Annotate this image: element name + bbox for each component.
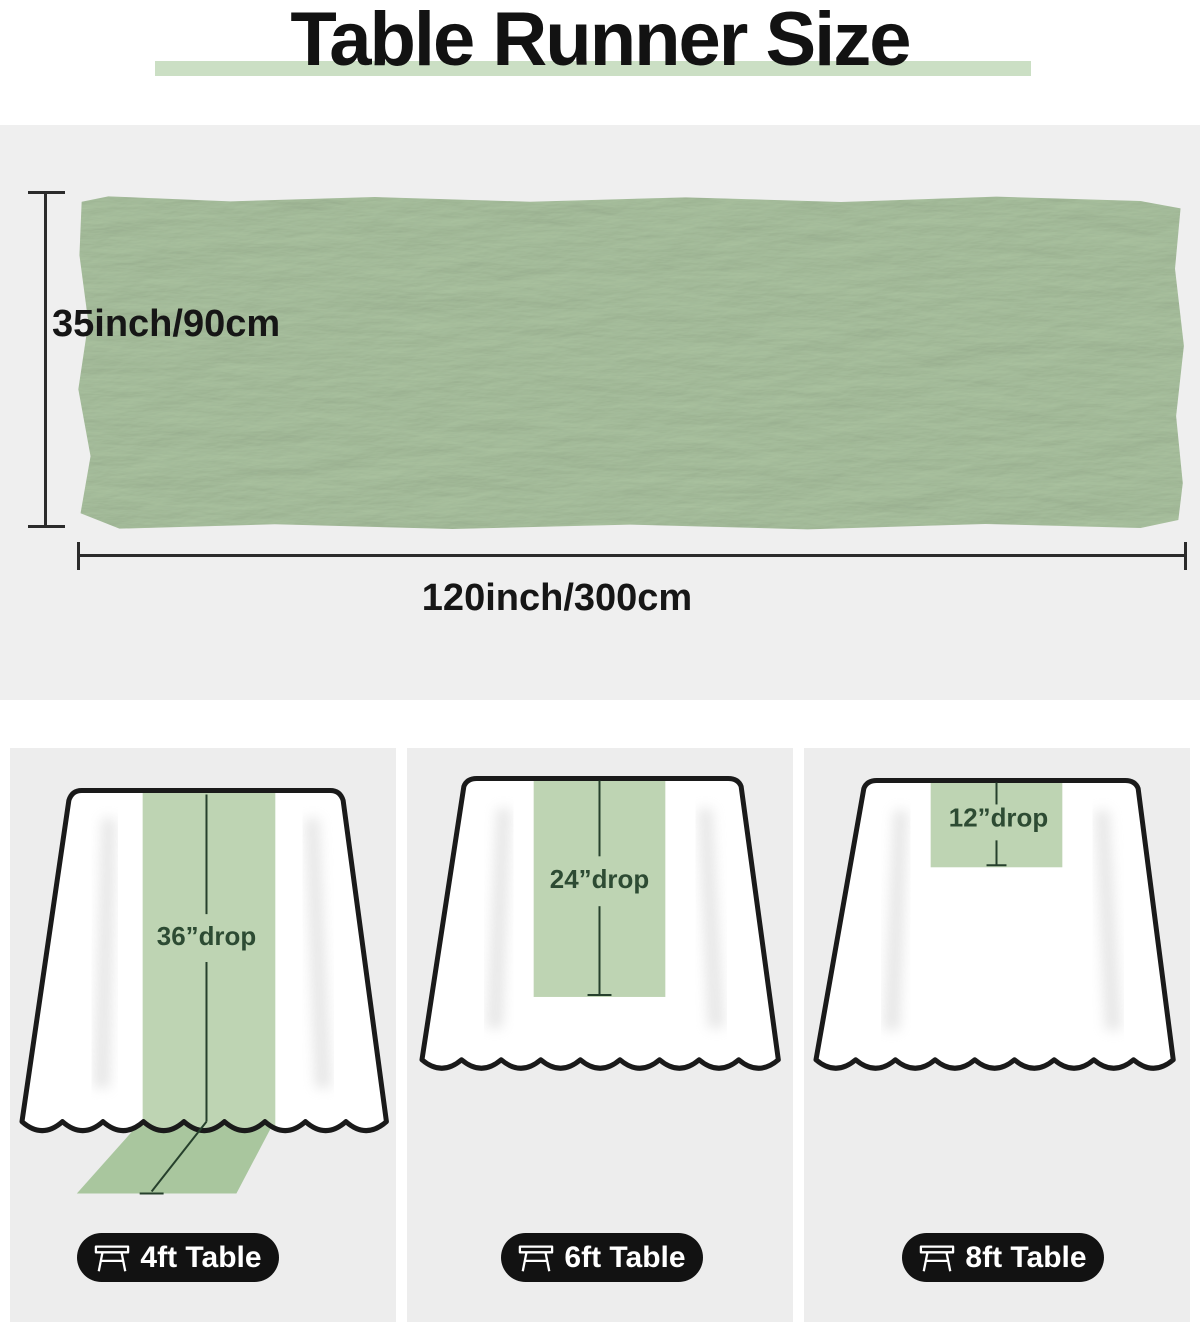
table-size-badge: 8ft Table [902,1233,1104,1282]
height-dimension-label: 35inch/90cm [52,303,280,346]
width-dimension-cap-left [77,542,80,570]
table-size-label: 4ft Table [140,1241,261,1275]
drop-label: 12”drop [949,804,1048,832]
panel-4ft-table: 36”drop 4ft Table [10,748,396,1322]
height-dimension-line [44,193,47,528]
runner-photo [75,195,1185,530]
panel-8ft-table: 12”drop 8ft Table [804,748,1190,1322]
runner-strip [143,788,276,1137]
table-icon [919,1242,955,1274]
size-panels: 36”drop 4ft Table [0,748,1200,1322]
table-icon [94,1242,130,1274]
header: Table Runner Size [0,0,1200,125]
height-dimension-cap-top [28,191,65,194]
runner-fabric-texture [75,195,1185,530]
runner-photo-section: 35inch/90cm 120inch/300cm [0,125,1200,700]
height-dimension-cap-bottom [28,525,65,528]
width-dimension-cap-right [1184,542,1187,570]
width-dimension-line [77,554,1187,557]
table-size-badge: 6ft Table [501,1233,703,1282]
width-dimension-label: 120inch/300cm [0,577,1114,620]
table-size-label: 8ft Table [965,1241,1086,1275]
panel-6ft-table: 24”drop 6ft Table [407,748,793,1322]
tablecloth-diagram-8ft: 12”drop [804,748,1190,1208]
drop-label: 36”drop [157,923,256,951]
table-size-badge: 4ft Table [77,1233,279,1282]
tablecloth-diagram-4ft: 36”drop [10,748,396,1208]
table-icon [518,1242,554,1274]
table-size-label: 6ft Table [564,1241,685,1275]
drop-label: 24”drop [550,866,649,894]
page-title: Table Runner Size [0,0,1200,83]
tablecloth-diagram-6ft: 24”drop [407,748,793,1208]
